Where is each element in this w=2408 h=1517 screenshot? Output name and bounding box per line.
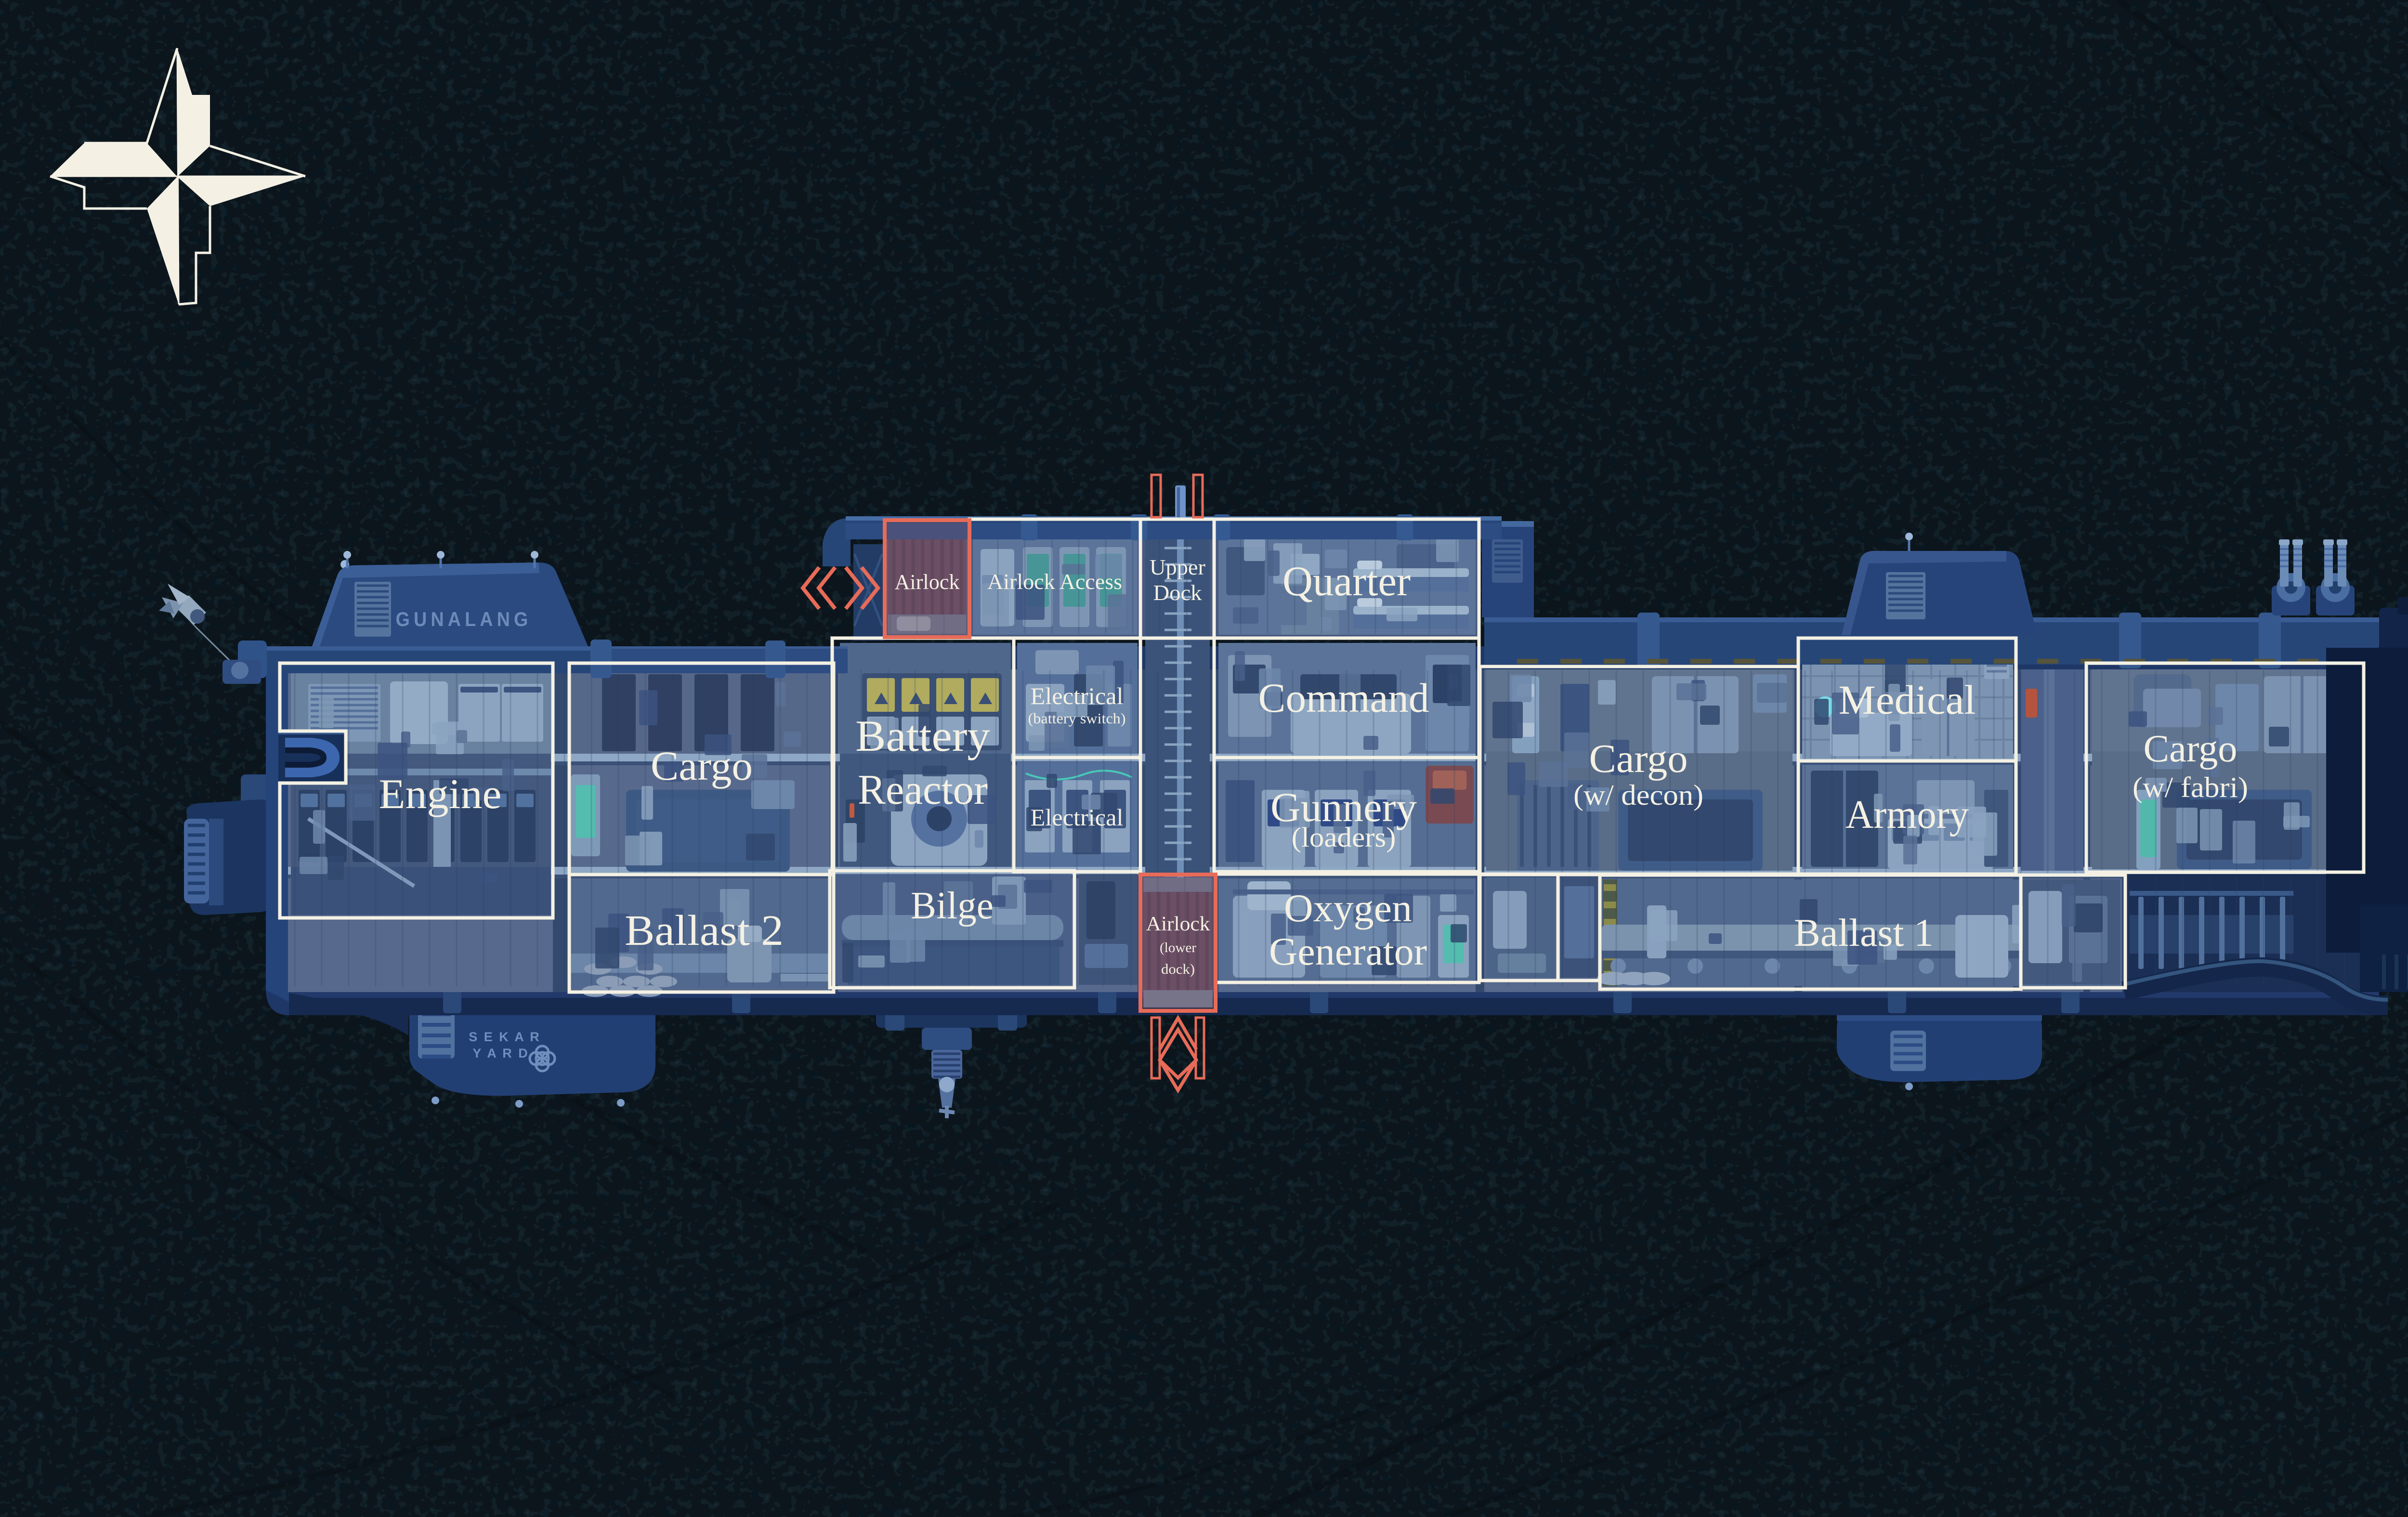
svg-text:Command: Command (1258, 675, 1429, 721)
svg-text:Electrical: Electrical (1031, 804, 1124, 831)
svg-text:GUNALANG: GUNALANG (396, 608, 532, 630)
svg-text:Cargo: Cargo (651, 743, 753, 789)
svg-text:(w/ decon): (w/ decon) (1573, 779, 1703, 811)
svg-text:Engine: Engine (379, 771, 502, 818)
svg-text:Ballast 1: Ballast 1 (1794, 911, 1934, 955)
svg-text:Airlock: Airlock (895, 570, 960, 594)
svg-text:Armory: Armory (1845, 792, 1969, 837)
svg-text:Ballast 2: Ballast 2 (625, 907, 784, 955)
svg-text:Airlock: Airlock (1146, 913, 1210, 935)
svg-text:S E K A R: S E K A R (469, 1030, 541, 1044)
svg-text:Medical: Medical (1839, 677, 1976, 723)
svg-text:Quarter: Quarter (1283, 558, 1411, 605)
svg-text:dock): dock) (1161, 961, 1195, 977)
svg-text:Airlock Access: Airlock Access (987, 569, 1122, 594)
svg-text:(loaders): (loaders) (1292, 822, 1396, 853)
svg-text:Oxygen: Oxygen (1284, 886, 1412, 930)
svg-text:(battery switch): (battery switch) (1028, 710, 1126, 727)
svg-text:(lower: (lower (1160, 940, 1196, 955)
svg-text:Battery: Battery (855, 711, 990, 760)
svg-text:Cargo: Cargo (1589, 736, 1688, 781)
svg-text:Reactor: Reactor (858, 767, 988, 813)
svg-text:Electrical: Electrical (1031, 682, 1124, 709)
svg-text:Bilge: Bilge (911, 885, 994, 927)
svg-text:Upper: Upper (1150, 555, 1205, 579)
svg-text:Dock: Dock (1153, 581, 1203, 605)
svg-text:Cargo: Cargo (2144, 728, 2238, 770)
svg-text:Generator: Generator (1269, 929, 1427, 973)
svg-text:Y A R D: Y A R D (472, 1046, 529, 1060)
svg-text:(w/ fabri): (w/ fabri) (2133, 772, 2248, 803)
